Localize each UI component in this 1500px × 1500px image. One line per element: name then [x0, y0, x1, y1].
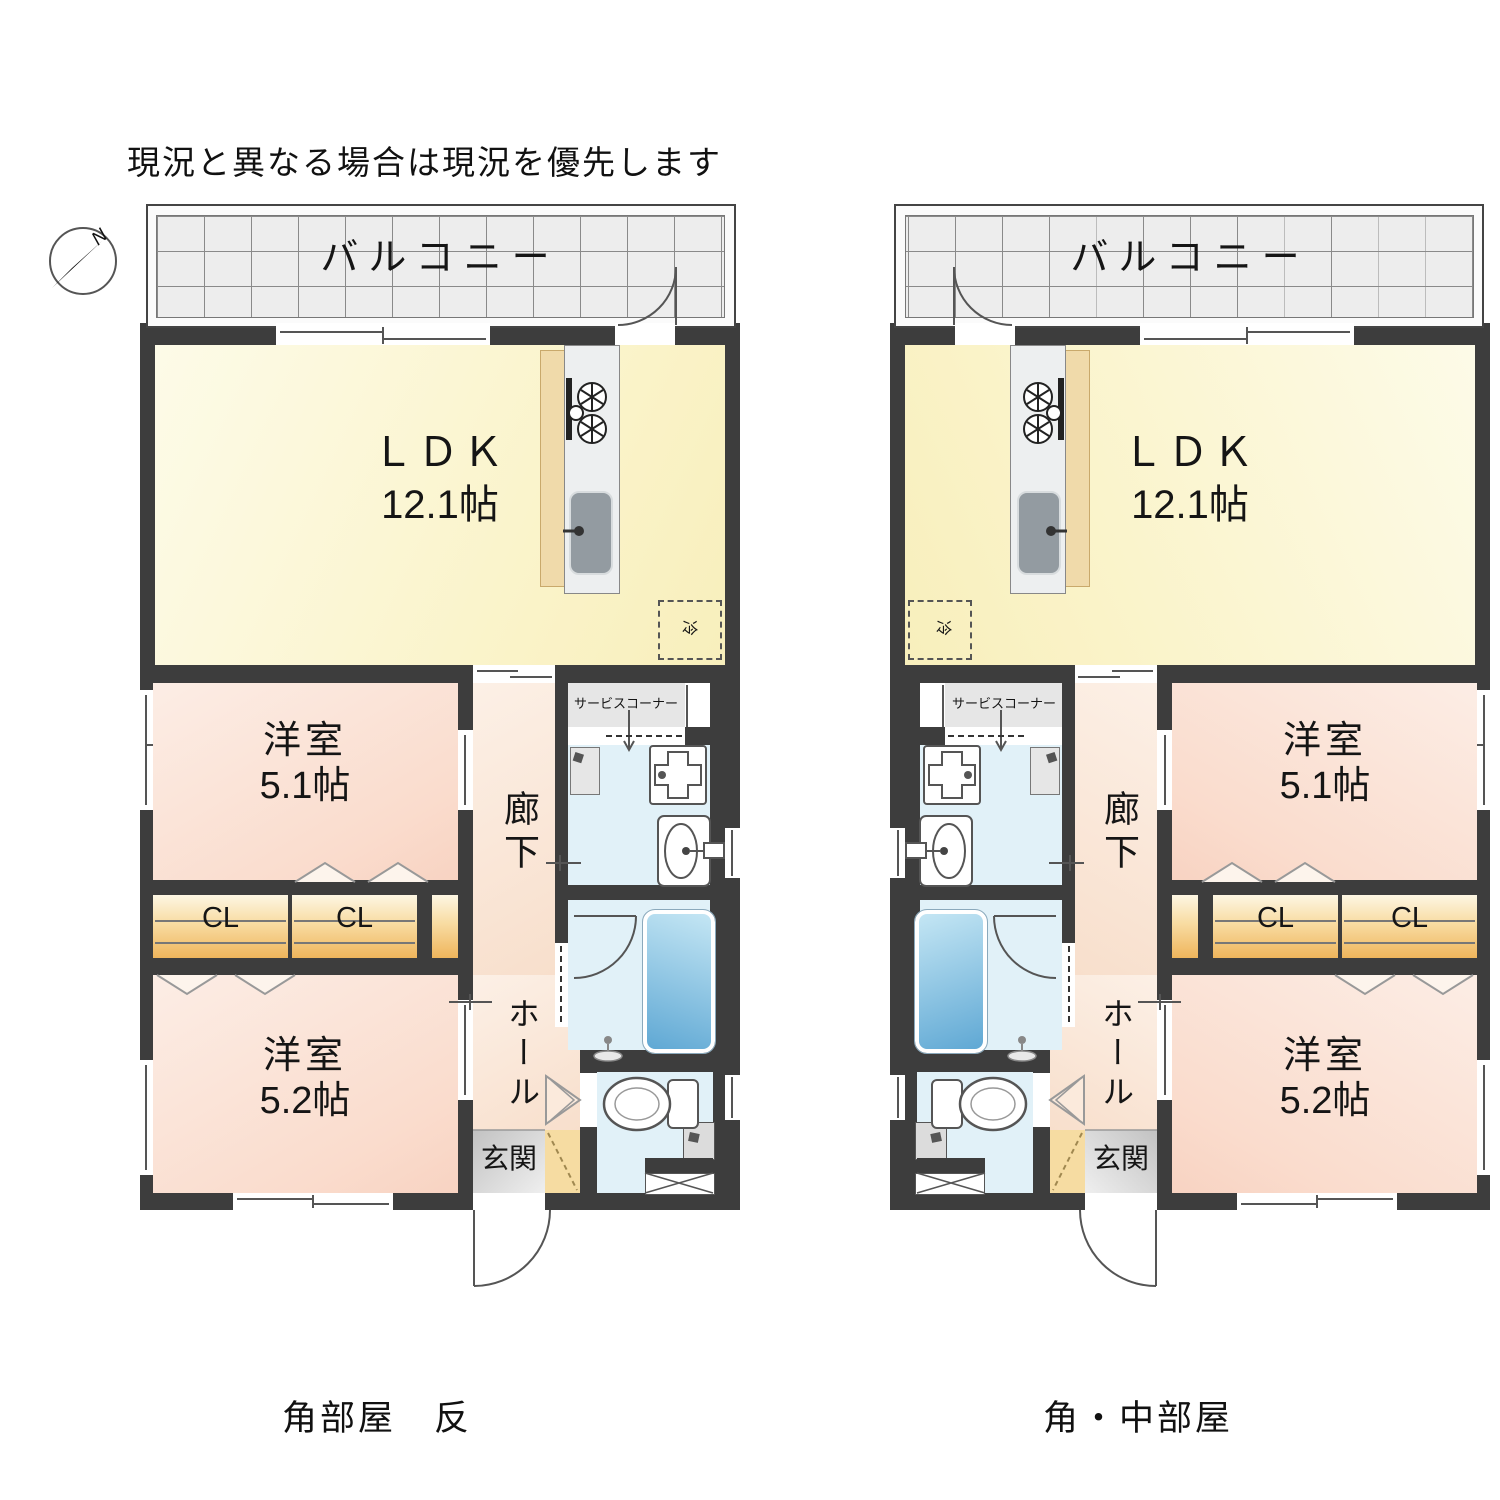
hall-label: ホール: [497, 988, 539, 1123]
bedroom2-window: [140, 1060, 153, 1175]
service-corner-door: [568, 727, 685, 745]
bedroom1-door: [458, 730, 473, 810]
bedroom1-window: [1477, 690, 1490, 810]
bedroom1-size: 5.1帖: [1205, 766, 1445, 807]
ldk-label: ＬＤＫ: [310, 430, 570, 474]
ldk-size: 12.1帖: [310, 484, 570, 527]
bedroom2-label: 洋室: [1205, 1036, 1445, 1077]
entrance-step-wedge: [1050, 1130, 1085, 1193]
floorplan-sheet: 現況と異なる場合は現況を優先します N: [0, 0, 1500, 1500]
entrance-label: 玄関: [1085, 1144, 1157, 1174]
toilet-door-opening: [580, 1073, 597, 1127]
washroom-cabinet: [570, 747, 600, 795]
bedroom2-south-window: [1237, 1193, 1397, 1210]
toilet-wall-strip: [645, 1158, 713, 1173]
service-corner-shelf: [685, 683, 710, 727]
compass-north-icon: N: [42, 220, 124, 302]
entrance-label: 玄関: [473, 1144, 545, 1174]
service-corner-label: サービスコーナー: [566, 697, 686, 711]
closet-small: [432, 895, 458, 958]
caption-left: 角部屋 反: [282, 1390, 472, 1441]
entrance-step-wedge: [545, 1130, 580, 1193]
service-corner-shelf: [920, 683, 945, 727]
entry-door-opening: [473, 1193, 545, 1210]
closet2-label: CL: [1213, 903, 1338, 934]
balcony-label: バルコニー: [898, 238, 1482, 279]
closet-small: [1172, 895, 1198, 958]
toilet-window: [890, 1075, 905, 1120]
caption-right: 角・中部屋: [1043, 1390, 1233, 1441]
bedroom2-south-window: [233, 1193, 393, 1210]
toilet-door-opening: [1033, 1073, 1050, 1127]
bedroom1-label: 洋室: [185, 721, 425, 762]
refrigerator-label: 冷: [660, 598, 716, 658]
balcony-door-opening: [955, 323, 1015, 345]
floorplan-right: バルコニー ＬＤＫ 12.1帖 洋室 5.1帖 洋室 5.2帖 CL CL 廊下…: [890, 200, 1490, 1210]
washroom-window: [890, 828, 905, 878]
balcony-label: バルコニー: [148, 238, 732, 279]
toilet-window: [725, 1075, 740, 1120]
bedroom2-size: 5.2帖: [1205, 1081, 1445, 1122]
kitchen-appliance-column: [564, 345, 620, 594]
bathtub: [915, 910, 987, 1053]
toilet-wall-strip: [917, 1158, 985, 1173]
washroom-door: [555, 943, 568, 1027]
closet1-label: CL: [153, 903, 288, 934]
bedroom1-window: [140, 690, 153, 810]
disclaimer-note: 現況と異なる場合は現況を優先します: [127, 136, 722, 184]
balcony-door-opening: [615, 323, 675, 345]
service-corner-label: サービスコーナー: [944, 697, 1064, 711]
corridor-label: 廊下: [1092, 768, 1138, 898]
meter-box: [915, 1173, 985, 1195]
bedroom1-label: 洋室: [1205, 721, 1445, 762]
ldk-corridor-door: [473, 665, 555, 683]
toilet-pipe-box: [683, 1122, 715, 1160]
refrigerator-label: 冷: [914, 598, 970, 658]
ldk-label: ＬＤＫ: [1060, 430, 1320, 474]
toilet-pipe-box: [915, 1122, 947, 1160]
bathtub: [643, 910, 715, 1053]
floorplan-left: バルコニー ＬＤＫ 12.1帖 洋室 5.1帖 洋室 5.2帖 CL CL 廊下…: [140, 200, 740, 1210]
corridor-label: 廊下: [492, 768, 538, 898]
service-corner-door: [945, 727, 1062, 745]
bedroom2-window: [1477, 1060, 1490, 1175]
entry-door-opening: [1085, 1193, 1157, 1210]
ldk-balcony-window: [276, 323, 490, 345]
bedroom1-door: [1157, 730, 1172, 810]
hall-label: ホール: [1091, 988, 1133, 1123]
closet2-label: CL: [292, 903, 417, 934]
washroom-cabinet: [1030, 747, 1060, 795]
closet1-label: CL: [1342, 903, 1477, 934]
bedroom2-door: [1157, 1000, 1172, 1100]
kitchen-appliance-column: [1010, 345, 1066, 594]
bedroom2-size: 5.2帖: [185, 1081, 425, 1122]
bedroom2-door: [458, 1000, 473, 1100]
meter-box: [645, 1173, 715, 1195]
washroom-window: [725, 828, 740, 878]
ldk-balcony-window: [1140, 323, 1354, 345]
ldk-size: 12.1帖: [1060, 484, 1320, 527]
bedroom1-size: 5.1帖: [185, 766, 425, 807]
ldk-corridor-door: [1075, 665, 1157, 683]
washroom-door: [1062, 943, 1075, 1027]
bedroom2-label: 洋室: [185, 1036, 425, 1077]
